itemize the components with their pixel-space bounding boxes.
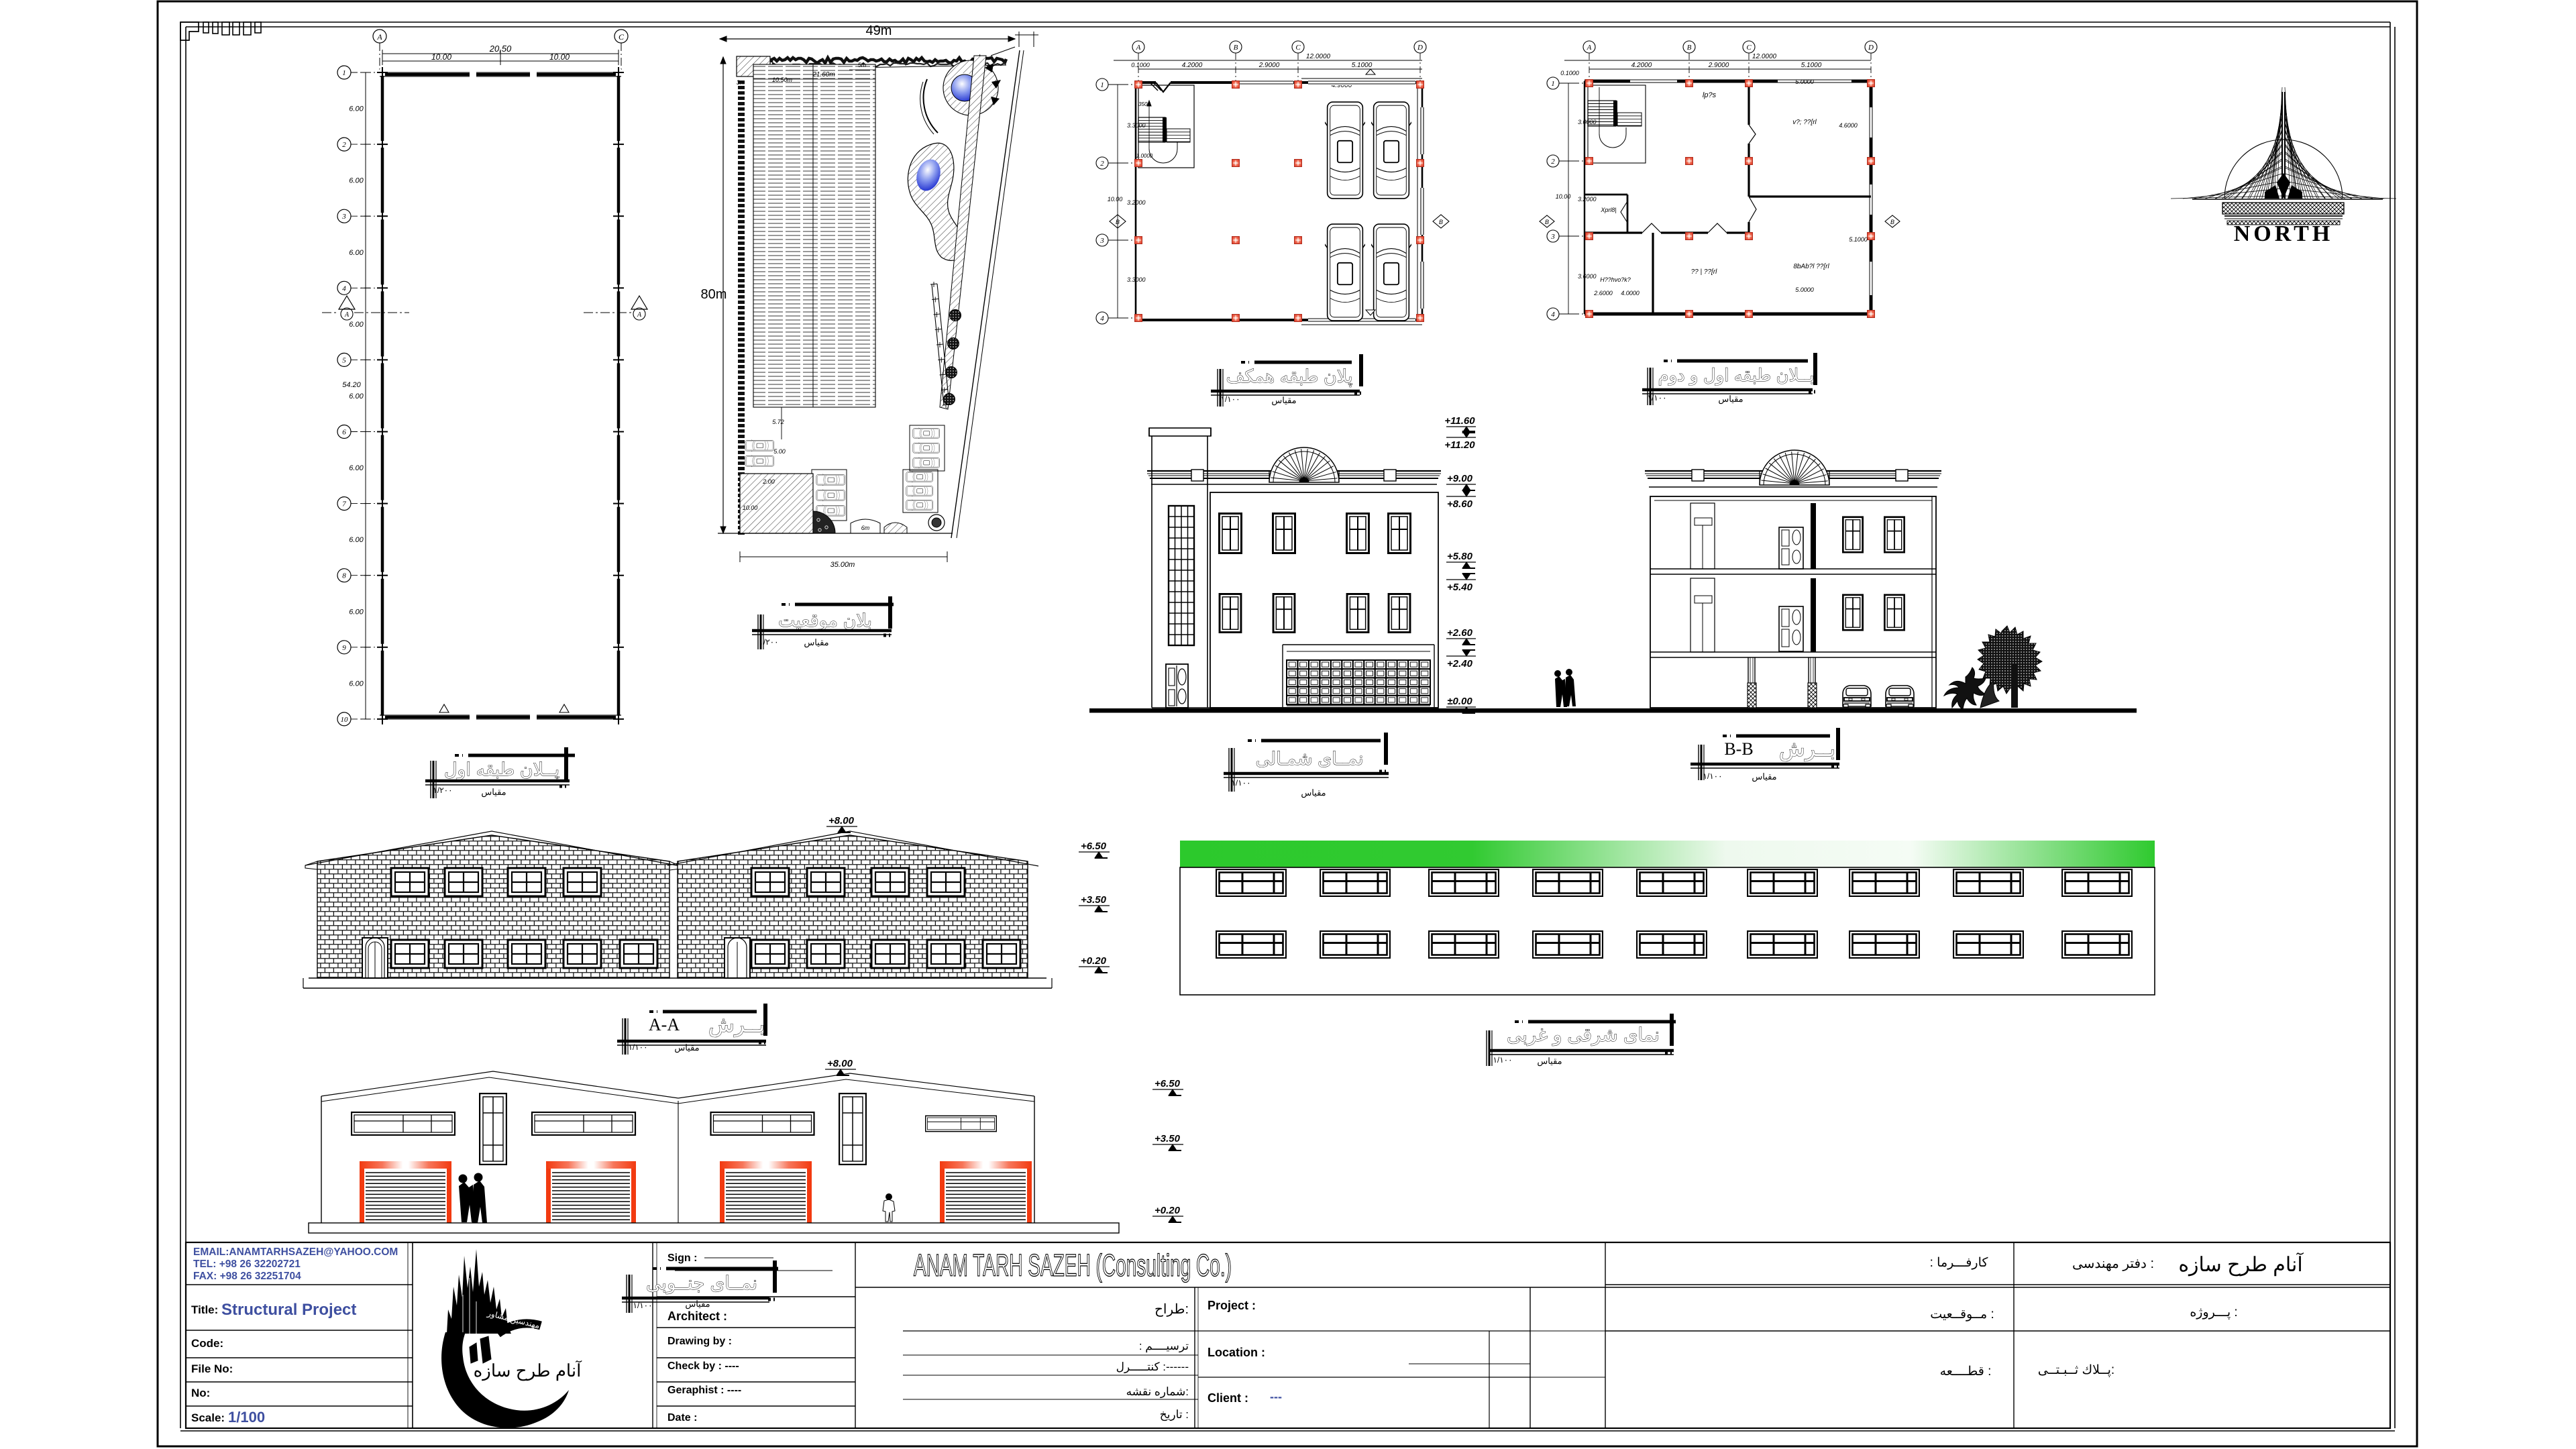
- svg-text:۱/۲۰۰: ۱/۲۰۰: [759, 637, 778, 647]
- svg-text:4.0000: 4.0000: [1621, 290, 1640, 297]
- svg-text:نماى شرقى و غربى: نماى شرقى و غربى: [1507, 1024, 1660, 1046]
- svg-text:4: 4: [1551, 311, 1555, 319]
- svg-text:1.0000: 1.0000: [1136, 153, 1153, 159]
- svg-text:آنام طرح سازه: آنام طرح سازه: [2178, 1252, 2304, 1277]
- svg-text:Drawing by :: Drawing by :: [667, 1336, 732, 1347]
- svg-text:2.6000: 2.6000: [1593, 290, 1613, 297]
- svg-text:NORTH: NORTH: [2234, 221, 2333, 246]
- svg-text:5.1000: 5.1000: [1801, 62, 1822, 69]
- svg-text:B: B: [1116, 219, 1120, 225]
- svg-text:5: 5: [342, 356, 346, 364]
- svg-text:Structural Project: Structural Project: [221, 1301, 356, 1319]
- svg-text:3: 3: [341, 213, 346, 221]
- svg-text:2.9000: 2.9000: [1708, 62, 1729, 69]
- svg-text:6.00: 6.00: [349, 680, 364, 688]
- svg-text:6.00: 6.00: [349, 464, 364, 472]
- svg-text:1: 1: [342, 69, 346, 77]
- svg-text:+6.50: +6.50: [1155, 1078, 1181, 1089]
- svg-text:6.00: 6.00: [349, 392, 364, 400]
- svg-text:Check by : ----: Check by : ----: [667, 1360, 739, 1372]
- svg-text:نمــاى شمـالى: نمــاى شمـالى: [1256, 749, 1364, 769]
- svg-text:Sign :: Sign :: [667, 1252, 697, 1264]
- svg-text:Code:: Code:: [191, 1337, 223, 1350]
- svg-text:10: 10: [341, 716, 349, 724]
- svg-text:3: 3: [1550, 233, 1555, 241]
- svg-text:4: 4: [342, 284, 346, 292]
- svg-text:+11.60: +11.60: [1444, 415, 1475, 427]
- svg-text:4.6000: 4.6000: [1839, 122, 1858, 129]
- svg-text:C: C: [619, 32, 625, 42]
- svg-text:A: A: [637, 311, 642, 319]
- svg-text:6.00: 6.00: [349, 249, 364, 257]
- svg-text:3.6000: 3.6000: [1578, 273, 1597, 280]
- svg-text:4: 4: [1100, 315, 1104, 323]
- svg-text:2.00: 2.00: [762, 478, 775, 485]
- svg-text:4.2000: 4.2000: [1631, 62, 1652, 69]
- svg-text:Architect :: Architect :: [667, 1309, 727, 1323]
- svg-text:10.00: 10.00: [431, 52, 451, 62]
- svg-text:B: B: [1545, 219, 1549, 225]
- svg-text:+8.60: +8.60: [1447, 498, 1473, 510]
- svg-text:بــلان طبقه اول و دوم: بــلان طبقه اول و دوم: [1658, 365, 1814, 386]
- svg-text:H??hvo?k?: H??hvo?k?: [1600, 276, 1631, 283]
- svg-text:54.20: 54.20: [342, 381, 361, 389]
- svg-text:Date :: Date :: [667, 1412, 697, 1424]
- svg-text:مقياس: مقياس: [804, 637, 828, 648]
- svg-text:3.0000: 3.0000: [1578, 119, 1597, 125]
- svg-text:نمــاى جنــوبى: نمــاى جنــوبى: [646, 1273, 757, 1294]
- svg-text:مقياس: مقياس: [674, 1042, 699, 1053]
- svg-text:6.00: 6.00: [349, 177, 364, 185]
- svg-text:8: 8: [342, 572, 346, 580]
- svg-text:+9.00: +9.00: [1447, 473, 1473, 484]
- svg-text:8bAb?l ??[rl: 8bAb?l ??[rl: [1793, 263, 1829, 270]
- svg-text:1: 1: [1100, 81, 1104, 89]
- svg-text:6m: 6m: [861, 525, 870, 531]
- svg-text:1/100: 1/100: [228, 1409, 265, 1426]
- svg-text:v?; ??[rl: v?; ??[rl: [1792, 119, 1817, 126]
- svg-text:2: 2: [342, 141, 346, 149]
- svg-text:+0.20: +0.20: [1081, 955, 1107, 967]
- svg-text:4.2000: 4.2000: [1182, 62, 1203, 69]
- svg-text:+3.50: +3.50: [1155, 1133, 1181, 1144]
- svg-text:پـــروژه :: پـــروژه :: [2190, 1305, 2237, 1320]
- svg-text:مقياس: مقياس: [1537, 1056, 1562, 1067]
- svg-text:?? | ??[rl: ?? | ??[rl: [1691, 268, 1718, 276]
- svg-text:12.0000: 12.0000: [1752, 53, 1777, 60]
- svg-text:+8.00: +8.00: [827, 1058, 853, 1069]
- svg-text:0.1000: 0.1000: [1131, 62, 1150, 68]
- svg-text:Xprl8|: Xprl8|: [1600, 207, 1616, 213]
- svg-text:مقياس: مقياس: [1752, 771, 1776, 782]
- svg-text:مقياس: مقياس: [1718, 394, 1743, 405]
- svg-text:پــلاك ثــبـتــى:: پــلاك ثــبـتــى:: [2038, 1363, 2114, 1377]
- svg-text:۱/۱۰۰: ۱/۱۰۰: [1703, 771, 1722, 781]
- svg-text:۱/۲۰۰: ۱/۲۰۰: [433, 786, 452, 795]
- svg-text:3.2000: 3.2000: [1578, 196, 1597, 203]
- svg-text:Project :: Project :: [1207, 1299, 1256, 1312]
- svg-text:A: A: [1136, 44, 1141, 52]
- svg-text:A-A: A-A: [649, 1015, 680, 1034]
- svg-text:A: A: [376, 32, 382, 42]
- svg-text:5.0000: 5.0000: [1795, 78, 1814, 85]
- svg-text:3500: 3500: [1138, 101, 1150, 107]
- svg-text:۱/۱۰۰: ۱/۱۰۰: [1220, 394, 1240, 404]
- svg-text:Title:: Title:: [191, 1303, 218, 1316]
- svg-text:---: ---: [1270, 1390, 1282, 1403]
- svg-text:EMAIL:ANAMTARHSAZEH@YAHOO.COM: EMAIL:ANAMTARHSAZEH@YAHOO.COM: [193, 1246, 398, 1258]
- svg-text:B-B: B-B: [1724, 739, 1753, 759]
- svg-text:مقياس: مقياس: [1301, 788, 1326, 798]
- svg-text:6.00: 6.00: [349, 321, 364, 329]
- svg-text:5m: 5m: [858, 62, 867, 68]
- svg-text:49m: 49m: [866, 23, 892, 38]
- svg-text:A: A: [1587, 44, 1592, 52]
- svg-text:+2.60: +2.60: [1447, 627, 1473, 639]
- svg-text:7: 7: [342, 500, 346, 508]
- svg-text:10.00: 10.00: [743, 504, 758, 511]
- svg-text:lp?s: lp?s: [1703, 91, 1717, 99]
- svg-text:ANAM TARH SAZEH (Consulting Co: ANAM TARH SAZEH (Consulting Co.): [914, 1248, 1232, 1283]
- svg-text:6.00: 6.00: [349, 608, 364, 616]
- svg-text:+2.40: +2.40: [1447, 658, 1473, 669]
- svg-text:5.00: 5.00: [773, 448, 786, 455]
- svg-text:+3.50: +3.50: [1081, 894, 1107, 906]
- svg-text:+6.50: +6.50: [1081, 841, 1107, 852]
- svg-text:طراح:: طراح:: [1155, 1302, 1189, 1317]
- svg-text:۱/۱۰۰: ۱/۱۰۰: [628, 1042, 647, 1052]
- svg-text:A: A: [344, 311, 350, 319]
- svg-text:بلان موقعيت: بلان موقعيت: [778, 610, 872, 631]
- svg-text:12.0000: 12.0000: [1306, 53, 1331, 60]
- svg-text:10.00: 10.00: [549, 52, 570, 62]
- svg-text:D: D: [1417, 44, 1423, 52]
- svg-text:Client :: Client :: [1207, 1391, 1248, 1405]
- svg-text:C: C: [1295, 44, 1301, 52]
- svg-text:File No:: File No:: [191, 1362, 233, 1375]
- svg-text:مقياس: مقياس: [685, 1299, 710, 1309]
- svg-text:1: 1: [1551, 80, 1555, 88]
- svg-text:۱/۱۰۰: ۱/۱۰۰: [1493, 1055, 1512, 1065]
- svg-text:آنام طرح سازه: آنام طرح سازه: [474, 1360, 582, 1381]
- svg-text:+5.40: +5.40: [1447, 582, 1473, 593]
- svg-text:0.1000: 0.1000: [1560, 70, 1579, 76]
- svg-text:2.9000: 2.9000: [1258, 62, 1280, 69]
- svg-text:C: C: [1746, 44, 1752, 52]
- svg-text:80m: 80m: [701, 287, 727, 302]
- svg-text:TEL: +98 26 32202721: TEL: +98 26 32202721: [193, 1258, 301, 1270]
- svg-text:21.60m: 21.60m: [812, 71, 835, 78]
- svg-text:B: B: [1234, 44, 1238, 52]
- svg-text:+0.20: +0.20: [1155, 1205, 1181, 1216]
- svg-text:D: D: [1868, 44, 1874, 52]
- svg-text:6: 6: [342, 429, 346, 437]
- svg-text:Scale:: Scale:: [191, 1411, 225, 1424]
- svg-text:2: 2: [1551, 158, 1555, 166]
- svg-text:Geraphist : ----: Geraphist : ----: [667, 1385, 741, 1396]
- svg-text:پلان طبقه همكف: پلان طبقه همكف: [1226, 366, 1353, 387]
- svg-text:: كارفـــرما: : كارفـــرما: [1930, 1256, 1989, 1270]
- svg-text:۱/۱۰۰: ۱/۱۰۰: [1231, 778, 1250, 788]
- svg-text:5.1000: 5.1000: [1352, 62, 1373, 69]
- svg-text:3: 3: [1099, 237, 1104, 245]
- svg-text:5.1000: 5.1000: [1849, 236, 1868, 243]
- svg-text:۱/۱۰۰: ۱/۱۰۰: [1647, 393, 1666, 402]
- svg-text:±0.00: ±0.00: [1447, 696, 1472, 707]
- svg-text:10.00: 10.00: [1108, 196, 1123, 203]
- svg-text:10.50m: 10.50m: [772, 76, 793, 83]
- svg-text:5.72: 5.72: [772, 419, 784, 425]
- svg-text:3m: 3m: [737, 79, 745, 86]
- svg-text:2: 2: [1100, 160, 1104, 168]
- svg-text:مقياس: مقياس: [481, 787, 506, 798]
- svg-text:شماره نقشه:: شماره نقشه:: [1126, 1385, 1189, 1399]
- svg-text:: ترسيــــم: : ترسيــــم: [1139, 1340, 1189, 1353]
- svg-text:FAX: +98 26 32251704: FAX: +98 26 32251704: [193, 1271, 301, 1282]
- svg-text:Location :: Location :: [1207, 1346, 1265, 1359]
- svg-text:+11.20: +11.20: [1444, 439, 1475, 451]
- svg-text:B: B: [1687, 44, 1692, 52]
- svg-text:كنتـــــرل :------: كنتـــــرل :------: [1116, 1360, 1189, 1374]
- svg-text:B: B: [1439, 219, 1443, 225]
- svg-text:+8.00: +8.00: [828, 815, 855, 826]
- svg-text:35.00m: 35.00m: [830, 561, 855, 569]
- svg-text:10.00: 10.00: [1556, 193, 1571, 200]
- svg-text:پــلان طبقه اول: پــلان طبقه اول: [444, 759, 559, 780]
- svg-text:۱/۱۰۰: ۱/۱۰۰: [633, 1301, 652, 1310]
- svg-text:مــوقــعيت :: مــوقــعيت :: [1930, 1307, 1994, 1322]
- svg-text:20,50: 20,50: [489, 44, 512, 54]
- svg-text:9: 9: [342, 644, 346, 652]
- svg-text:بــرش: بــرش: [708, 1012, 765, 1037]
- svg-text:تاريخ :: تاريخ :: [1160, 1408, 1189, 1421]
- svg-text:6.00: 6.00: [349, 536, 364, 544]
- svg-text:بــرش: بــرش: [1779, 737, 1835, 761]
- svg-text:+5.80: +5.80: [1447, 551, 1473, 562]
- svg-text:6.00: 6.00: [349, 105, 364, 113]
- svg-text:B: B: [1890, 219, 1894, 225]
- svg-text:5.0000: 5.0000: [1795, 286, 1814, 293]
- svg-text:مقياس: مقياس: [1271, 395, 1296, 406]
- svg-text:دفتر مهندسى :: دفتر مهندسى :: [2072, 1256, 2154, 1271]
- svg-text:قطــــعه :: قطــــعه :: [1940, 1364, 1992, 1379]
- svg-text:No:: No:: [191, 1387, 210, 1399]
